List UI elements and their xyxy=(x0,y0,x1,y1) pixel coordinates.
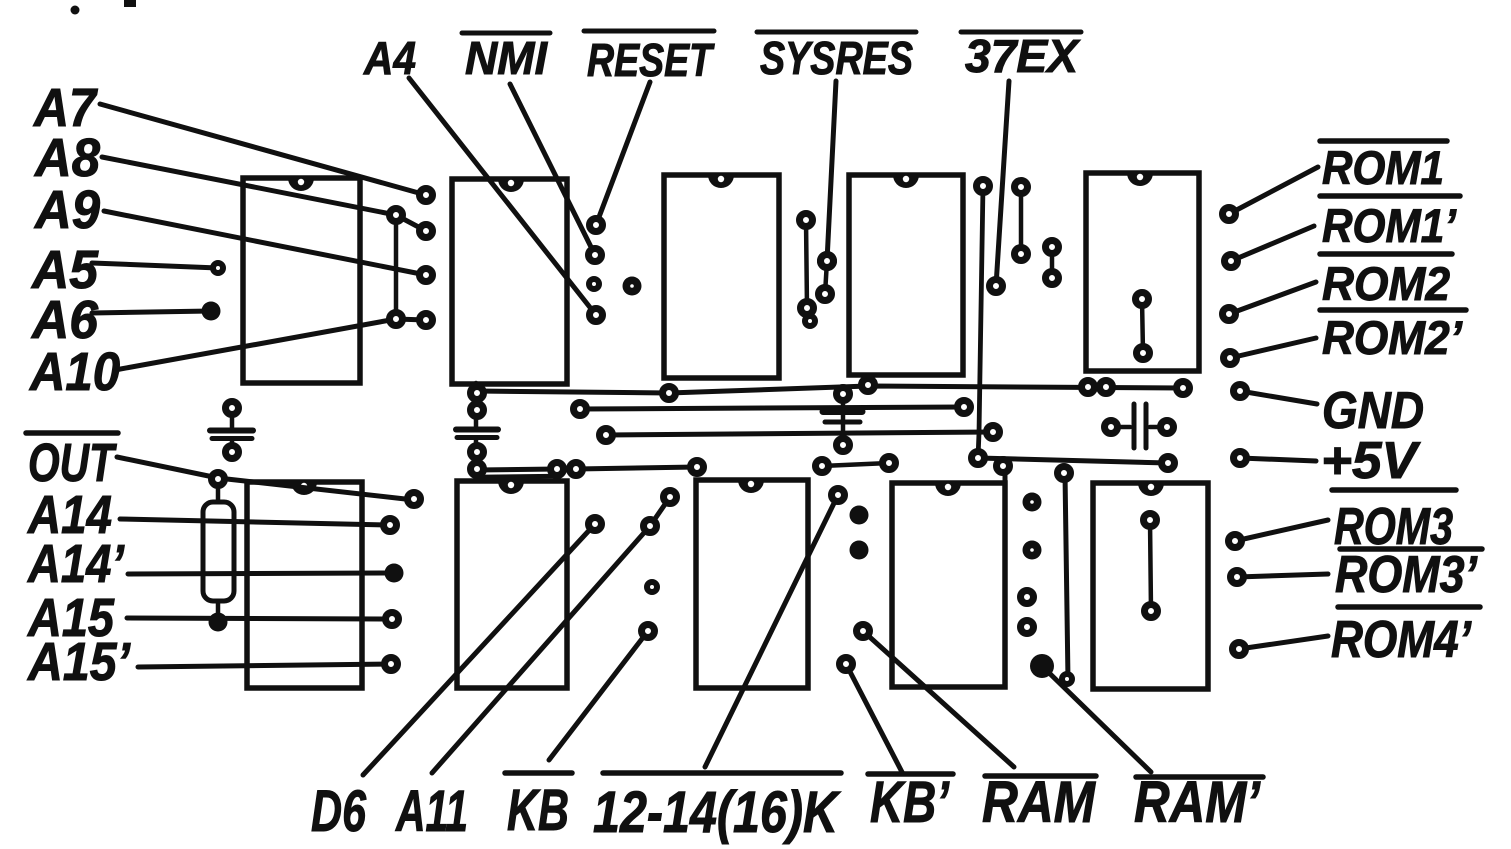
svg-text:ROM1’: ROM1’ xyxy=(1322,199,1457,252)
svg-text:A11: A11 xyxy=(395,779,468,844)
svg-text:A9: A9 xyxy=(33,180,100,240)
svg-text:37EX: 37EX xyxy=(965,30,1080,82)
svg-text:A14’: A14’ xyxy=(26,534,125,594)
svg-text:ROM2: ROM2 xyxy=(1322,257,1450,310)
svg-text:ROM2’: ROM2’ xyxy=(1322,311,1463,364)
svg-text:RAM’: RAM’ xyxy=(1134,770,1261,835)
svg-text:RAM: RAM xyxy=(982,770,1096,835)
svg-text:ROM4’: ROM4’ xyxy=(1331,611,1472,669)
svg-text:ROM3’: ROM3’ xyxy=(1335,546,1478,604)
svg-text:KB’: KB’ xyxy=(870,770,950,835)
svg-text:NMI: NMI xyxy=(465,32,548,84)
svg-text:A10: A10 xyxy=(28,342,120,402)
svg-text:RESET: RESET xyxy=(587,34,715,86)
svg-text:D6: D6 xyxy=(311,779,367,844)
svg-text:A6: A6 xyxy=(30,290,99,350)
svg-text:SYSRES: SYSRES xyxy=(760,32,913,84)
svg-text:12-14(16)K: 12-14(16)K xyxy=(593,780,841,845)
svg-text:+5V: +5V xyxy=(1321,432,1421,490)
svg-text:A15’: A15’ xyxy=(26,632,131,692)
svg-text:ROM1: ROM1 xyxy=(1322,141,1444,194)
svg-text:KB: KB xyxy=(507,778,569,843)
svg-text:A8: A8 xyxy=(33,128,100,188)
svg-text:OUT: OUT xyxy=(28,433,117,493)
